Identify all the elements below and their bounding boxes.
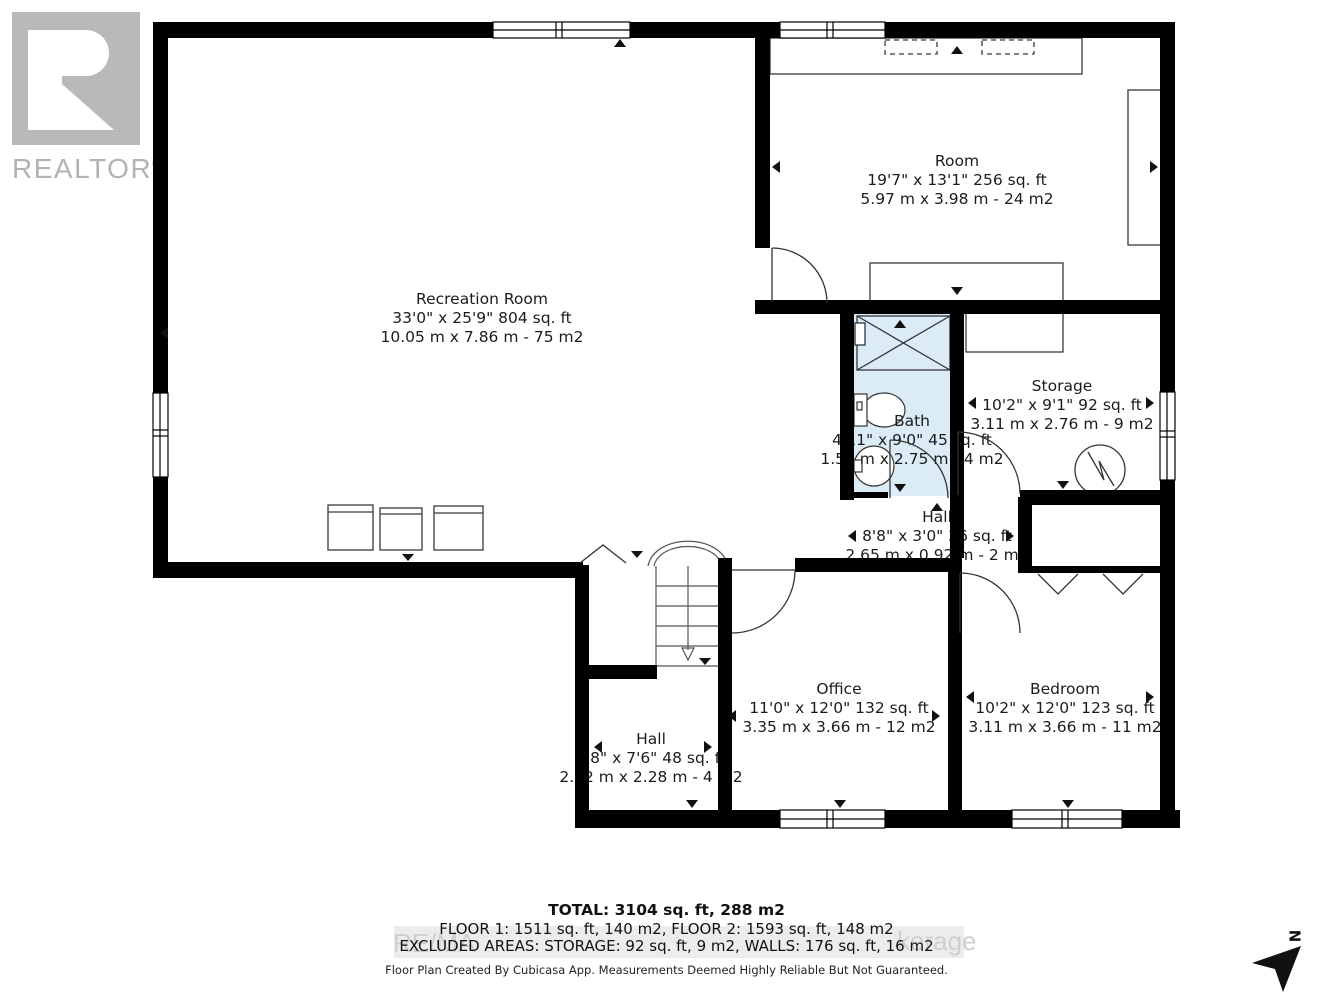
window-office-bottom xyxy=(780,810,885,828)
summary-total: TOTAL: 3104 sq. ft, 288 m2 xyxy=(0,901,1333,919)
window-recreation-left xyxy=(153,393,168,477)
stairs xyxy=(648,541,728,668)
summary-excluded: EXCLUDED AREAS: STORAGE: 92 sq. ft, 9 m2… xyxy=(0,937,1333,955)
compass-icon xyxy=(0,0,1333,1000)
floor-plan-under-layer xyxy=(0,0,1333,1000)
stairs-down-arrow-icon xyxy=(682,648,694,660)
water-heater-icon xyxy=(1075,445,1125,495)
floor-plan-over-layer xyxy=(0,0,1333,1000)
summary-floors: FLOOR 1: 1511 sq. ft, 140 m2, FLOOR 2: 1… xyxy=(0,920,1333,938)
room-label-room: Room 19'7" x 13'1" 256 sq. ft 5.97 m x 3… xyxy=(787,152,1127,208)
door-room xyxy=(772,248,827,303)
registered-mark: ® xyxy=(152,157,162,171)
window-recreation-top xyxy=(493,22,630,38)
room-label-storage: Storage 10'2" x 9'1" 92 sq. ft 3.11 m x … xyxy=(892,377,1232,433)
closet-bifold-doors xyxy=(1038,574,1143,594)
shower-icon xyxy=(855,316,950,370)
door-office xyxy=(732,570,795,633)
window-bedroom-bottom xyxy=(1012,810,1122,828)
room-label-hall-mid: Hall 8'8" x 3'0" 26 sq. ft 2.65 m x 0.92… xyxy=(767,508,1107,564)
recreation-furniture xyxy=(328,505,483,550)
realtor-logo-text: REALTOR® xyxy=(12,153,182,185)
room-label-recreation: Recreation Room 33'0" x 25'9" 804 sq. ft… xyxy=(312,290,652,346)
opening-stairs-zigzag xyxy=(580,545,626,563)
floor-plan-canvas: REALTOR® Recreation Room 33'0" x 25'9" 8… xyxy=(0,0,1333,1000)
footer-disclaimer: Floor Plan Created By Cubicasa App. Meas… xyxy=(0,963,1333,977)
room-label-hall-lower: Hall 6'8" x 7'6" 48 sq. ft 2.02 m x 2.28… xyxy=(481,730,821,786)
door-bedroom xyxy=(960,573,1020,633)
realtor-r-icon xyxy=(12,12,162,148)
room-label-bedroom: Bedroom 10'2" x 12'0" 123 sq. ft 3.11 m … xyxy=(895,680,1235,736)
realtor-logo: REALTOR® xyxy=(12,12,182,185)
compass-north-label: N xyxy=(1285,930,1303,943)
window-room-top xyxy=(780,22,885,38)
